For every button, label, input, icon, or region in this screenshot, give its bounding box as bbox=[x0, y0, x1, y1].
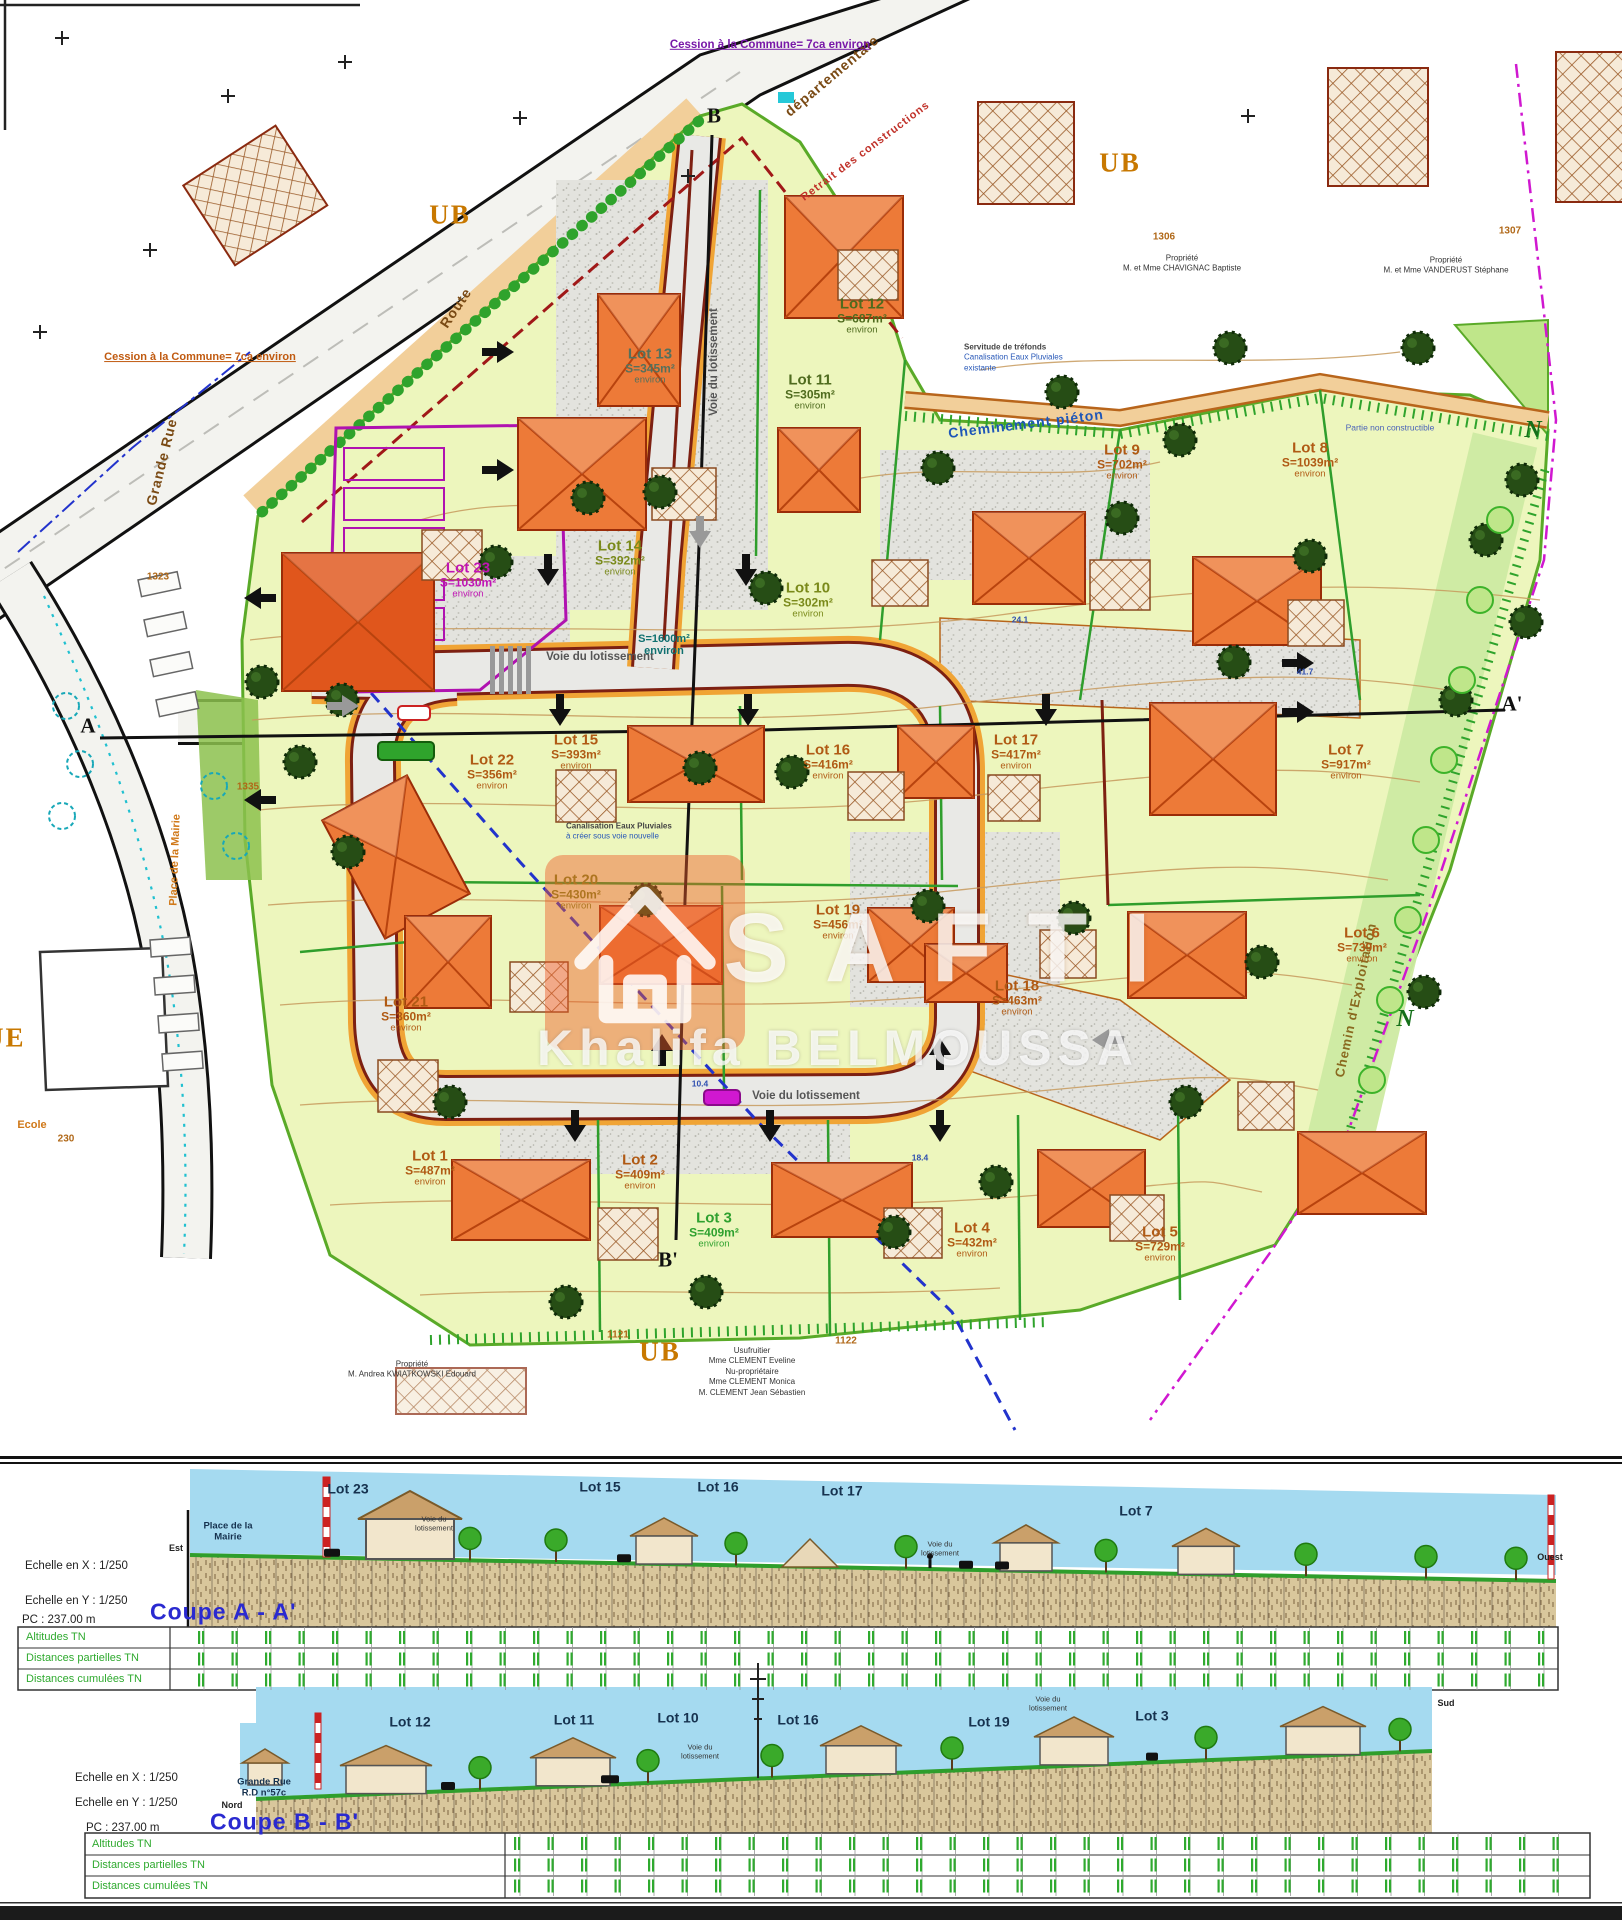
lotissement-plan-page: Echelle en X : 1/250 Echelle en Y : 1/25… bbox=[0, 0, 1622, 1920]
site-plan-drawing bbox=[0, 0, 1622, 1455]
cross-sections-drawing bbox=[0, 1455, 1622, 1920]
